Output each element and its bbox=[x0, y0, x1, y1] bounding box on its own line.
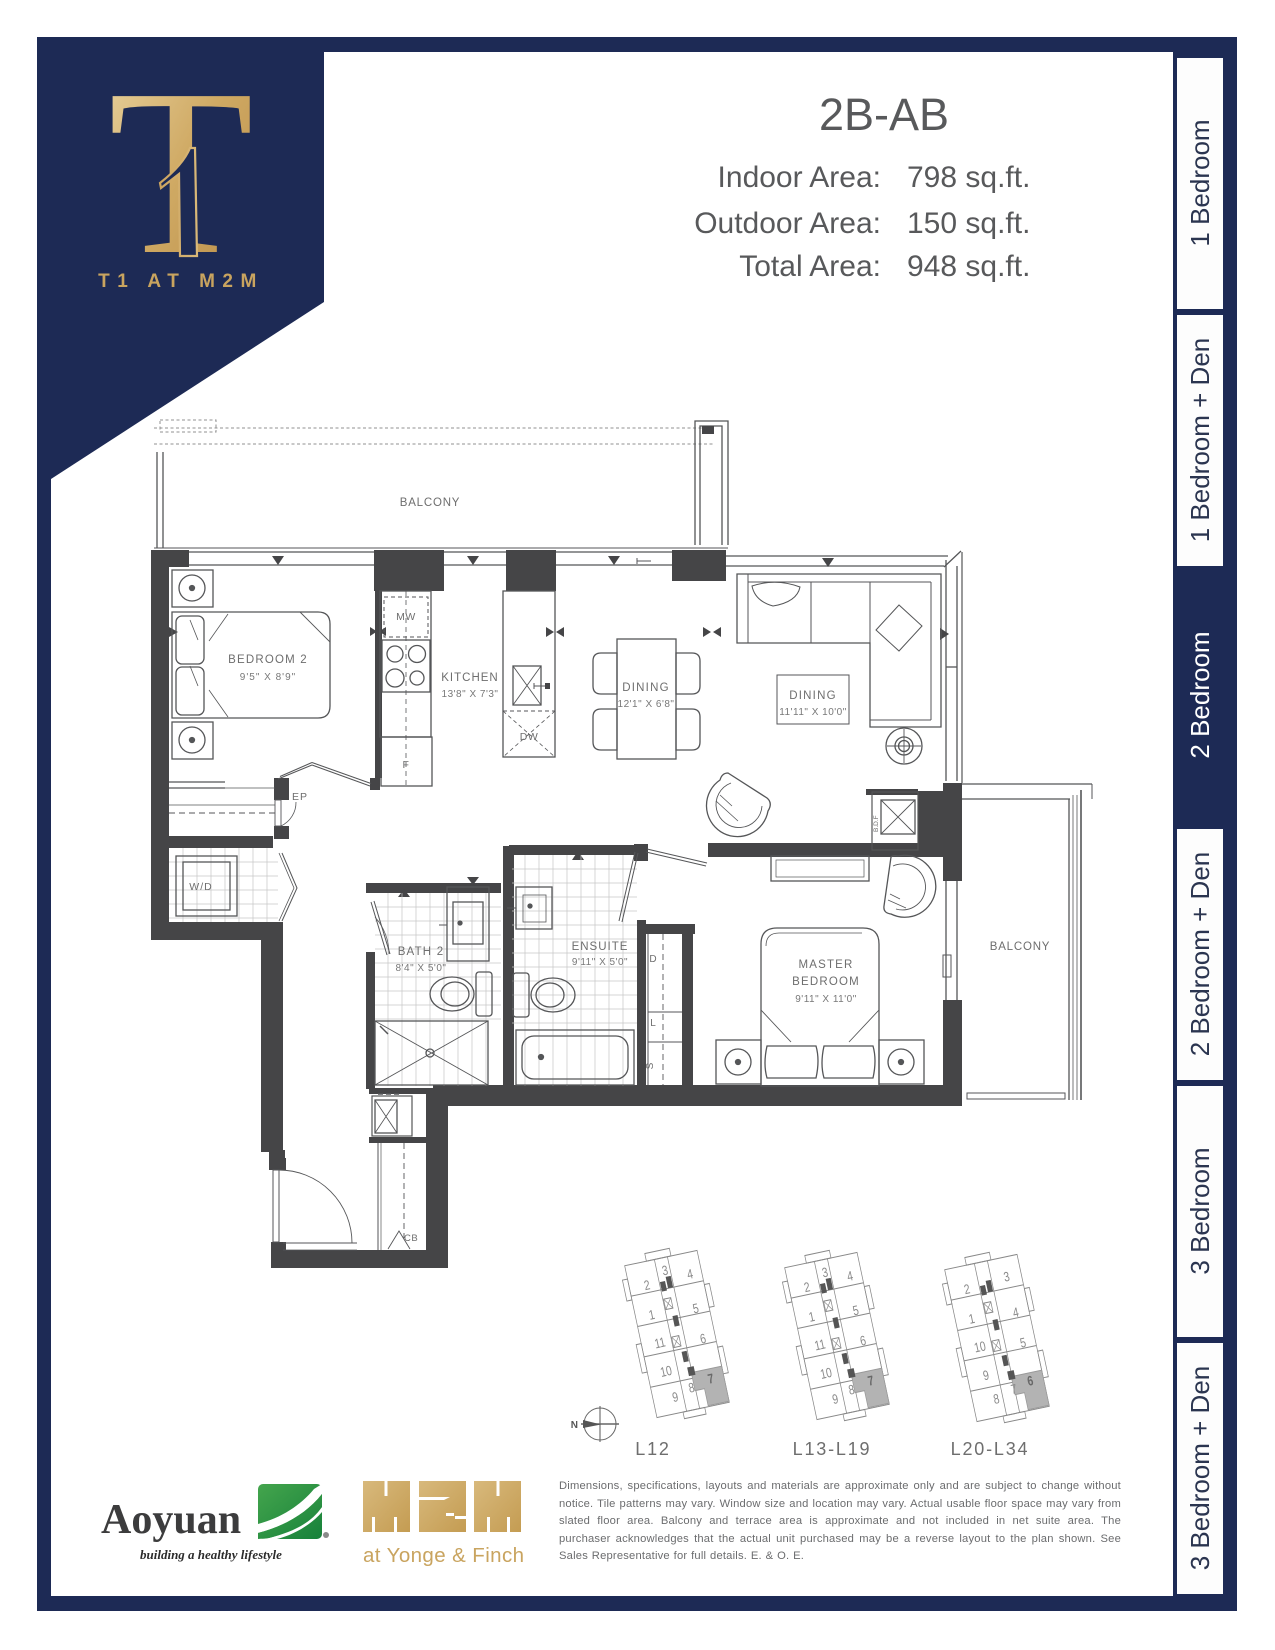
svg-text:3: 3 bbox=[1002, 1268, 1011, 1285]
svg-text:9: 9 bbox=[982, 1367, 991, 1384]
svg-text:MW: MW bbox=[396, 611, 416, 623]
svg-text:9'5" X 8'9": 9'5" X 8'9" bbox=[240, 672, 296, 683]
svg-text:1: 1 bbox=[807, 1309, 816, 1326]
svg-text:DW: DW bbox=[520, 731, 539, 743]
svg-text:13'8" X 7'3": 13'8" X 7'3" bbox=[442, 689, 499, 700]
svg-text:2: 2 bbox=[803, 1279, 812, 1296]
svg-text:9: 9 bbox=[831, 1391, 840, 1408]
svg-text:F: F bbox=[403, 759, 410, 771]
svg-text:BEDROOM 2: BEDROOM 2 bbox=[228, 654, 308, 666]
svg-text:DINING: DINING bbox=[622, 682, 669, 694]
svg-text:B.D.F: B.D.F bbox=[873, 815, 880, 832]
svg-text:DINING: DINING bbox=[789, 690, 836, 702]
svg-text:L20-L34: L20-L34 bbox=[951, 1439, 1030, 1459]
svg-text:1: 1 bbox=[967, 1311, 976, 1328]
svg-text:1: 1 bbox=[647, 1307, 656, 1324]
svg-text:KITCHEN: KITCHEN bbox=[441, 672, 498, 684]
svg-text:2: 2 bbox=[963, 1281, 972, 1298]
svg-text:L12: L12 bbox=[635, 1439, 670, 1459]
svg-text:BATH 2: BATH 2 bbox=[398, 946, 445, 958]
svg-text:11: 11 bbox=[813, 1336, 827, 1354]
svg-text:11'11" X 10'0": 11'11" X 10'0" bbox=[779, 707, 847, 718]
svg-text:BEDROOM: BEDROOM bbox=[792, 976, 860, 988]
svg-text:S: S bbox=[645, 1062, 656, 1069]
svg-text:10: 10 bbox=[659, 1362, 674, 1380]
svg-text:L13-L19: L13-L19 bbox=[793, 1439, 872, 1459]
svg-text:4: 4 bbox=[846, 1268, 855, 1285]
svg-text:ENSUITE: ENSUITE bbox=[572, 941, 629, 953]
svg-text:2: 2 bbox=[643, 1277, 652, 1294]
svg-text:BALCONY: BALCONY bbox=[990, 941, 1051, 953]
svg-text:11: 11 bbox=[653, 1334, 667, 1352]
svg-text:9'11" X 11'0": 9'11" X 11'0" bbox=[795, 994, 857, 1005]
svg-text:4: 4 bbox=[686, 1266, 695, 1283]
svg-text:12'1" X 6'8": 12'1" X 6'8" bbox=[618, 699, 675, 710]
svg-text:3: 3 bbox=[821, 1264, 830, 1281]
svg-text:EP: EP bbox=[292, 791, 308, 803]
svg-text:D: D bbox=[649, 954, 656, 965]
svg-text:MASTER: MASTER bbox=[798, 959, 853, 971]
svg-text:8: 8 bbox=[992, 1391, 1001, 1408]
svg-text:3: 3 bbox=[661, 1262, 670, 1279]
svg-text:L: L bbox=[650, 1018, 656, 1029]
svg-text:CB: CB bbox=[404, 1233, 418, 1244]
svg-text:10: 10 bbox=[973, 1338, 988, 1356]
svg-text:10: 10 bbox=[819, 1364, 834, 1382]
svg-text:W/D: W/D bbox=[189, 881, 212, 893]
svg-text:N: N bbox=[571, 1420, 578, 1431]
svg-text:8'4" X 5'0": 8'4" X 5'0" bbox=[396, 963, 447, 974]
svg-text:9'11" X 5'0": 9'11" X 5'0" bbox=[572, 957, 628, 968]
svg-text:9: 9 bbox=[671, 1389, 680, 1406]
svg-text:at Yonge & Finch: at Yonge & Finch bbox=[363, 1544, 524, 1567]
svg-text:BALCONY: BALCONY bbox=[400, 497, 461, 509]
